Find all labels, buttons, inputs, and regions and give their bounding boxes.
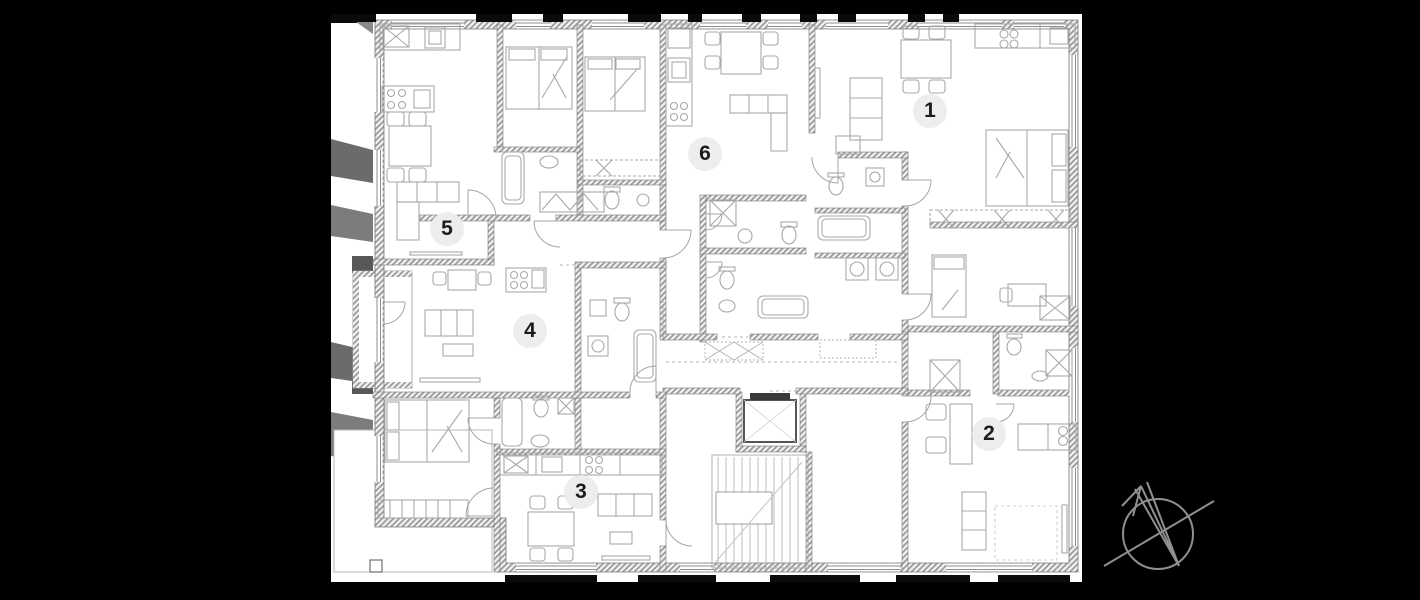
unit-badge-3[interactable]: 3 — [564, 475, 598, 509]
unit-badge-5[interactable]: 5 — [430, 212, 464, 246]
unit-badge-label: 1 — [924, 99, 936, 123]
unit-badge-label: 6 — [699, 142, 711, 166]
floor-plan-page: 1 2 3 4 5 6 — [0, 0, 1420, 600]
floor-plan-drawing — [0, 0, 1420, 600]
unit-badge-label: 3 — [575, 480, 587, 504]
unit-badge-6[interactable]: 6 — [688, 137, 722, 171]
unit-badge-label: 5 — [441, 217, 453, 241]
unit-badge-2[interactable]: 2 — [972, 417, 1006, 451]
unit-badge-1[interactable]: 1 — [913, 94, 947, 128]
unit-badge-4[interactable]: 4 — [513, 314, 547, 348]
unit-badge-label: 4 — [524, 319, 536, 343]
elevator — [744, 393, 796, 442]
unit-badge-label: 2 — [983, 422, 995, 446]
north-compass-icon — [1104, 482, 1214, 569]
